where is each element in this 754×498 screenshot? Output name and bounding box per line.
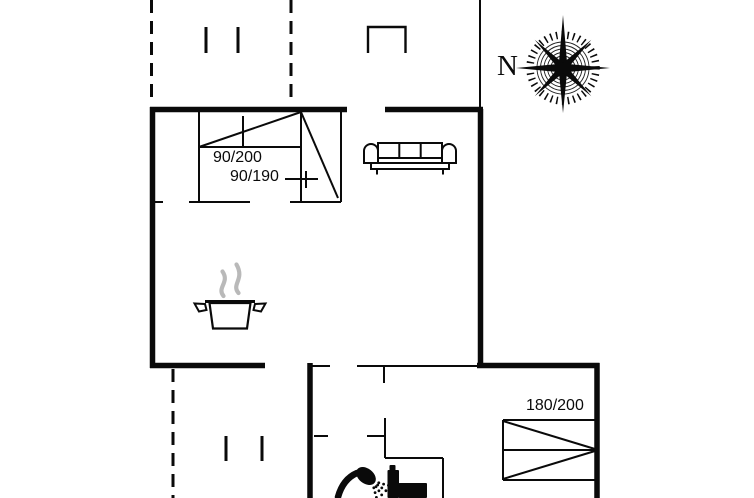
- floor-plan-drawing: [0, 0, 754, 498]
- sofa-icon: [364, 143, 456, 175]
- terrace-dashed-boundaries: [152, 0, 292, 498]
- chimney-symbol: [368, 27, 406, 53]
- terrace-bench-marks: [206, 27, 262, 461]
- bed-dimension-label-90-190: 90/190: [230, 169, 279, 186]
- floor-plan-page: N 90/200 90/190 180/200: [0, 0, 754, 498]
- bed-dimension-label-180-200: 180/200: [526, 398, 584, 415]
- cooking-pot-icon: [195, 302, 266, 329]
- compass-north-label: N: [497, 52, 518, 81]
- double-bed-icon: [503, 420, 596, 480]
- toilet-icon: [388, 465, 428, 498]
- interior-partitions: [152, 202, 478, 498]
- bed-dimension-label-90-200: 90/200: [213, 150, 262, 167]
- steam-icon: [221, 265, 239, 297]
- compass-rose-icon: [516, 15, 610, 113]
